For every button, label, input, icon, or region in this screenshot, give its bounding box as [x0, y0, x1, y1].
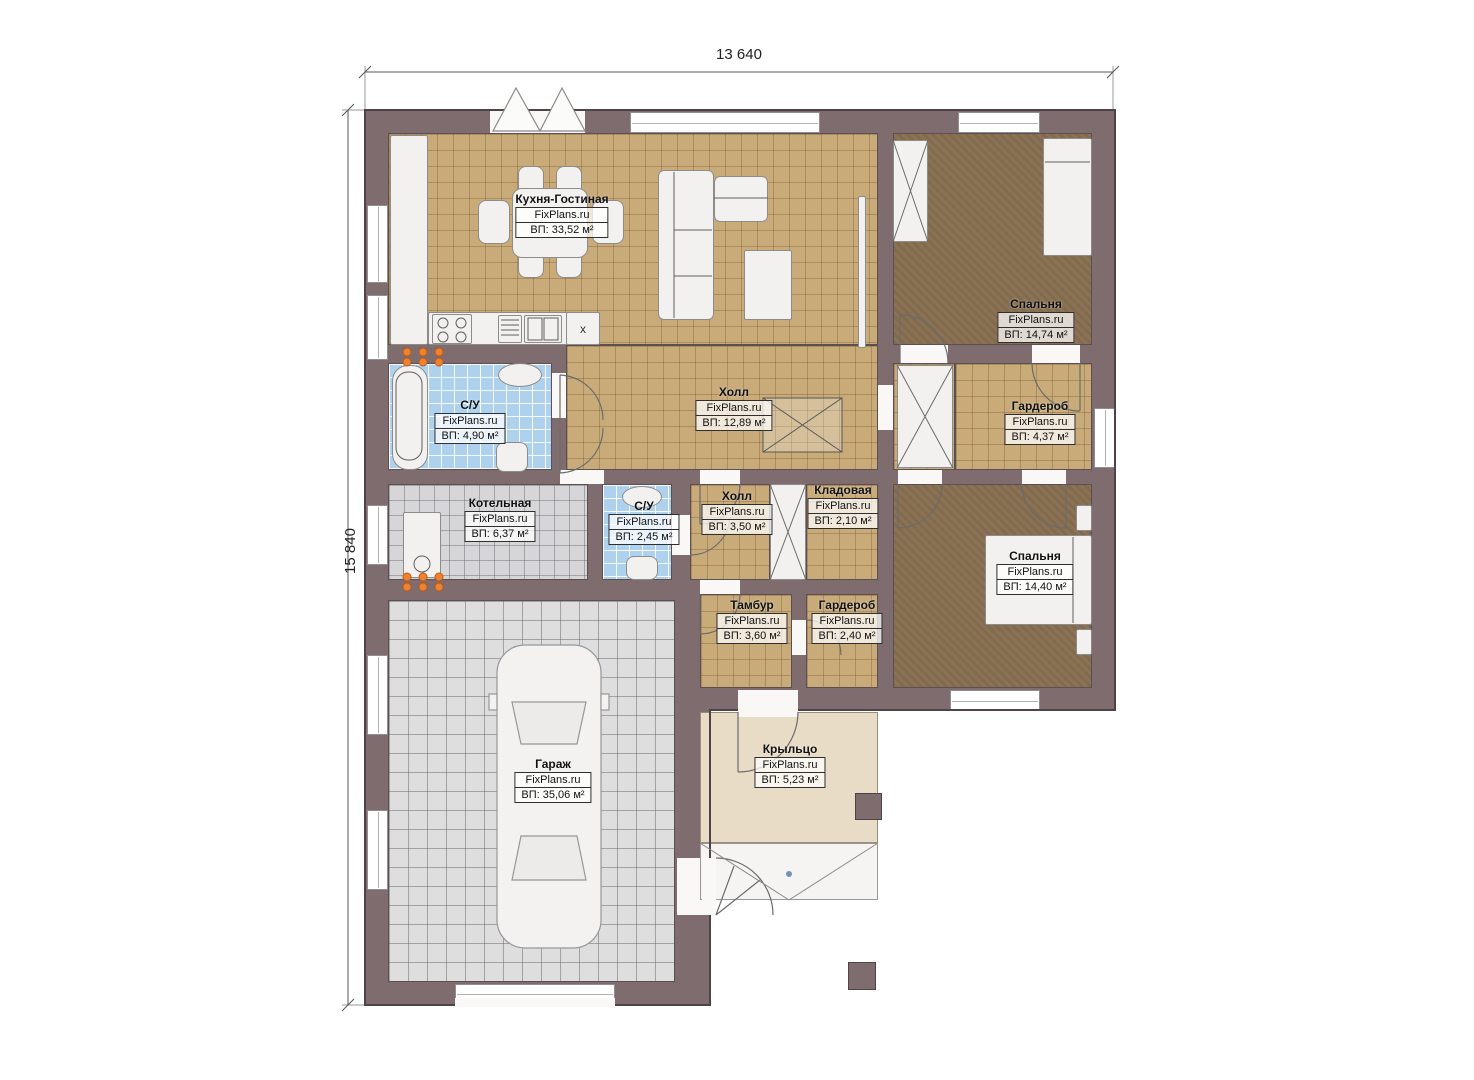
room-area: ВП: 2,40 м²: [811, 628, 882, 644]
hall-storage-cabinet: [770, 484, 806, 580]
room-area: ВП: 5,23 м²: [754, 772, 825, 788]
room-name: Спальня: [996, 549, 1073, 563]
watermark: FixPlans.ru: [701, 504, 772, 520]
room-area: ВП: 2,45 м²: [608, 529, 679, 545]
room-label-hall-main: Холл FixPlans.ru ВП: 12,89 м²: [695, 385, 772, 431]
room-label-storage: Кладовая FixPlans.ru ВП: 2,10 м²: [807, 483, 878, 529]
corridor-closet-cabinet: [897, 365, 953, 468]
room-label-wardrobe-small: Гардероб FixPlans.ru ВП: 2,40 м²: [811, 598, 882, 644]
room-name: С/У: [608, 499, 679, 513]
nightstand: [1076, 505, 1092, 531]
watermark: FixPlans.ru: [996, 564, 1073, 580]
nightstand: [1076, 629, 1092, 655]
tv-stand: [858, 196, 866, 348]
watermark: FixPlans.ru: [608, 514, 679, 530]
room-area: ВП: 12,89 м²: [695, 415, 772, 431]
dishwasher-icon: [498, 315, 522, 343]
room-area: ВП: 3,60 м²: [716, 628, 787, 644]
dining-chair: [478, 200, 510, 244]
room-name: Крыльцо: [754, 742, 825, 756]
watermark: FixPlans.ru: [515, 207, 608, 223]
room-area: ВП: 33,52 м²: [515, 222, 608, 238]
dimension-width-label: 13 640: [365, 46, 1113, 63]
kitchen-sink-icon: [524, 315, 562, 343]
watermark: FixPlans.ru: [997, 312, 1074, 328]
room-name: С/У: [434, 398, 505, 412]
window-top-bedroom: [958, 112, 1040, 133]
room-label-hall-small: Холл FixPlans.ru ВП: 3,50 м²: [701, 489, 772, 535]
room-area: ВП: 2,10 м²: [807, 513, 878, 529]
door-opening-bedroom-bottom-right: [1022, 470, 1066, 484]
watermark: FixPlans.ru: [695, 400, 772, 416]
watermark: FixPlans.ru: [807, 498, 878, 514]
room-area: ВП: 6,37 м²: [464, 526, 535, 542]
window-right-wardrobe: [1094, 408, 1115, 468]
toilet-icon: [626, 556, 658, 580]
door-opening-bedroom-bottom-left: [898, 470, 942, 484]
room-area: ВП: 35,06 м²: [514, 787, 591, 803]
dimension-height-label: 15 840: [342, 501, 358, 601]
wardrobe-cabinet-bedroom-top: [893, 140, 928, 242]
watermark: FixPlans.ru: [464, 511, 535, 527]
room-area: ВП: 4,90 м²: [434, 428, 505, 444]
coffee-table: [744, 250, 792, 320]
room-name: Холл: [695, 385, 772, 399]
door-opening-kitchen-exterior: [490, 111, 585, 133]
door-opening-hall-corridor: [878, 385, 893, 430]
room-name: Спальня: [997, 297, 1074, 311]
stove-icon: [432, 314, 472, 344]
door-opening-bedroom-top: [900, 345, 948, 363]
room-label-wardrobe-top: Гардероб FixPlans.ru ВП: 4,37 м²: [1004, 399, 1075, 445]
room-label-bathroom-small: С/У FixPlans.ru ВП: 2,45 м²: [608, 499, 679, 545]
room-name: Котельная: [464, 496, 535, 510]
window-left-garage-1: [367, 655, 388, 735]
room-area: ВП: 3,50 м²: [701, 519, 772, 535]
toilet-icon: [496, 442, 528, 472]
kitchen-counter-left: [390, 135, 428, 345]
watermark: FixPlans.ru: [434, 413, 505, 429]
window-bottom-bedroom: [950, 690, 1040, 711]
room-label-garage: Гараж FixPlans.ru ВП: 35,06 м²: [514, 757, 591, 803]
room-name: Кухня-Гостиная: [515, 192, 608, 206]
room-name: Кладовая: [807, 483, 878, 497]
room-name: Гараж: [514, 757, 591, 771]
window-left-kitchen-1: [367, 205, 388, 283]
watermark: FixPlans.ru: [716, 613, 787, 629]
door-opening-wardrobe-top: [1032, 345, 1080, 363]
door-opening-hall-small: [700, 470, 740, 484]
room-label-boiler: Котельная FixPlans.ru ВП: 6,37 м²: [464, 496, 535, 542]
room-label-vestibule: Тамбур FixPlans.ru ВП: 3,60 м²: [716, 598, 787, 644]
watermark: FixPlans.ru: [811, 613, 882, 629]
room-label-bedroom-bottom: Спальня FixPlans.ru ВП: 14,40 м²: [996, 549, 1073, 595]
washer-mark: x: [580, 322, 586, 336]
watermark: FixPlans.ru: [1004, 414, 1075, 430]
room-label-bedroom-top: Спальня FixPlans.ru ВП: 14,74 м²: [997, 297, 1074, 343]
window-left-kitchen-2: [367, 295, 388, 360]
bathtub-icon: [392, 365, 428, 470]
room-name: Тамбур: [716, 598, 787, 612]
garage-gate: [455, 984, 615, 1004]
sofa: [658, 170, 714, 320]
porch-steps: [700, 843, 878, 900]
yard-pillar: [848, 962, 876, 990]
window-left-boiler: [367, 505, 388, 565]
boiler-unit: [403, 512, 441, 578]
room-label-porch: Крыльцо FixPlans.ru ВП: 5,23 м²: [754, 742, 825, 788]
washbasin-icon: [498, 363, 542, 387]
sofa-chaise: [714, 176, 768, 222]
door-opening-bathroom-main: [552, 373, 566, 418]
watermark: FixPlans.ru: [514, 772, 591, 788]
door-opening-vestibule: [700, 580, 740, 594]
room-area: ВП: 14,40 м²: [996, 579, 1073, 595]
room-label-bathroom-main: С/У FixPlans.ru ВП: 4,90 м²: [434, 398, 505, 444]
watermark: FixPlans.ru: [754, 757, 825, 773]
door-opening-wardrobe-small: [792, 620, 806, 655]
washer-box: x: [566, 312, 600, 345]
room-name: Холл: [701, 489, 772, 503]
window-top-living: [630, 112, 820, 133]
room-label-kitchen-living: Кухня-Гостиная FixPlans.ru ВП: 33,52 м²: [515, 192, 608, 238]
room-area: ВП: 14,74 м²: [997, 327, 1074, 343]
room-name: Гардероб: [811, 598, 882, 612]
bed-single: [1043, 138, 1092, 256]
door-opening-boiler: [560, 470, 604, 484]
window-left-garage-2: [367, 810, 388, 890]
door-opening-entry: [738, 690, 798, 712]
room-name: Гардероб: [1004, 399, 1075, 413]
floor-plan-canvas: x: [0, 0, 1474, 1080]
room-area: ВП: 4,37 м²: [1004, 429, 1075, 445]
porch-pillar: [855, 793, 882, 820]
